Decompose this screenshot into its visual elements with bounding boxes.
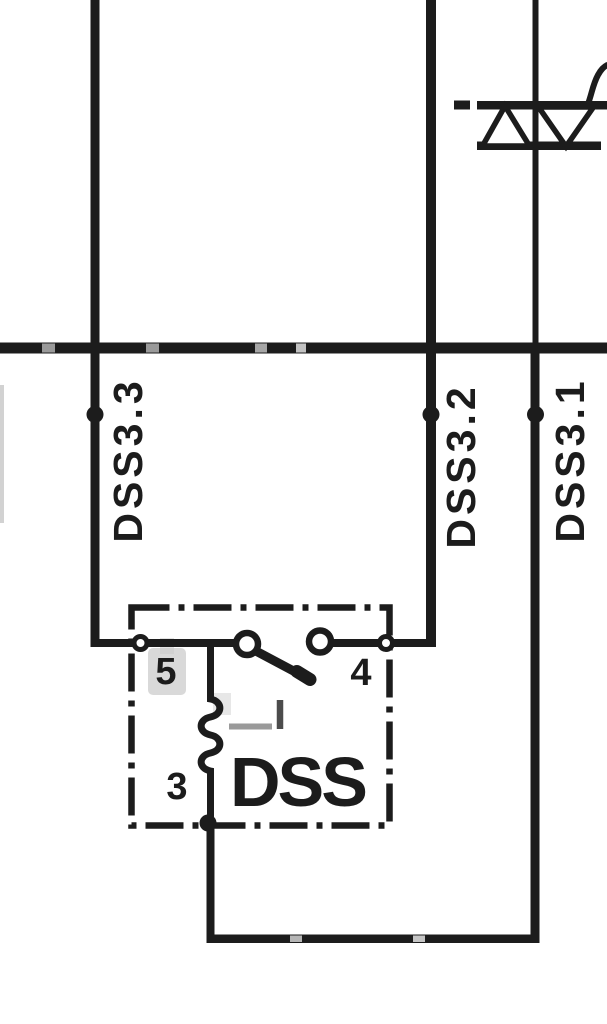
switch-wire-left (91, 639, 238, 647)
triac-right-triangle (539, 107, 594, 147)
bus-scan-gap (146, 344, 159, 353)
bus-scan-gap (296, 344, 306, 353)
switch-pivot-circle (236, 633, 258, 655)
wire-scan-gap (290, 936, 302, 943)
wire-label-dss3-2: DSS3.2 (438, 381, 484, 551)
bus-scan-gap (255, 344, 267, 353)
triac-icon (454, 65, 607, 151)
wire-dss3-2-vertical (426, 0, 436, 647)
resistor-coil-icon (201, 647, 220, 823)
switch-blade-tip (297, 672, 310, 680)
wire-dss3-3-vertical (91, 0, 100, 647)
schematic-canvas: DSS3.3 DSS3.2 DSS3.1 5 4 3 DSS (0, 0, 607, 1024)
wire-label-dss3-3: DSS3.3 (105, 375, 151, 545)
clipped-label-artifact (0, 385, 4, 523)
wire-label-dss3-1: DSS3.1 (547, 375, 593, 545)
bus-scan-gap (42, 344, 55, 353)
junction-dot-dss3-1 (527, 406, 544, 423)
switch-contact-circle (309, 631, 331, 653)
return-wire-horizontal (207, 935, 540, 944)
return-wire-vertical (207, 823, 215, 943)
wire-dss3-1-vertical (531, 348, 540, 942)
component-label-dss: DSS (230, 752, 365, 812)
junction-dot-dss3-3 (87, 406, 104, 423)
terminal-label-5: 5 (144, 651, 188, 693)
junction-dot-dss3-2 (423, 406, 440, 423)
terminal-circle-4 (380, 637, 393, 650)
triac-branch-wire (533, 0, 539, 348)
terminal-circle-5 (134, 637, 147, 650)
dash-dot-fragment (454, 101, 470, 110)
schematic-linework (0, 0, 607, 1024)
wire-scan-gap (413, 936, 425, 943)
triac-gate-lead (588, 65, 607, 105)
terminal-label-3: 3 (155, 766, 199, 808)
triac-left-triangle (483, 106, 530, 146)
terminal-label-4: 4 (339, 652, 383, 694)
